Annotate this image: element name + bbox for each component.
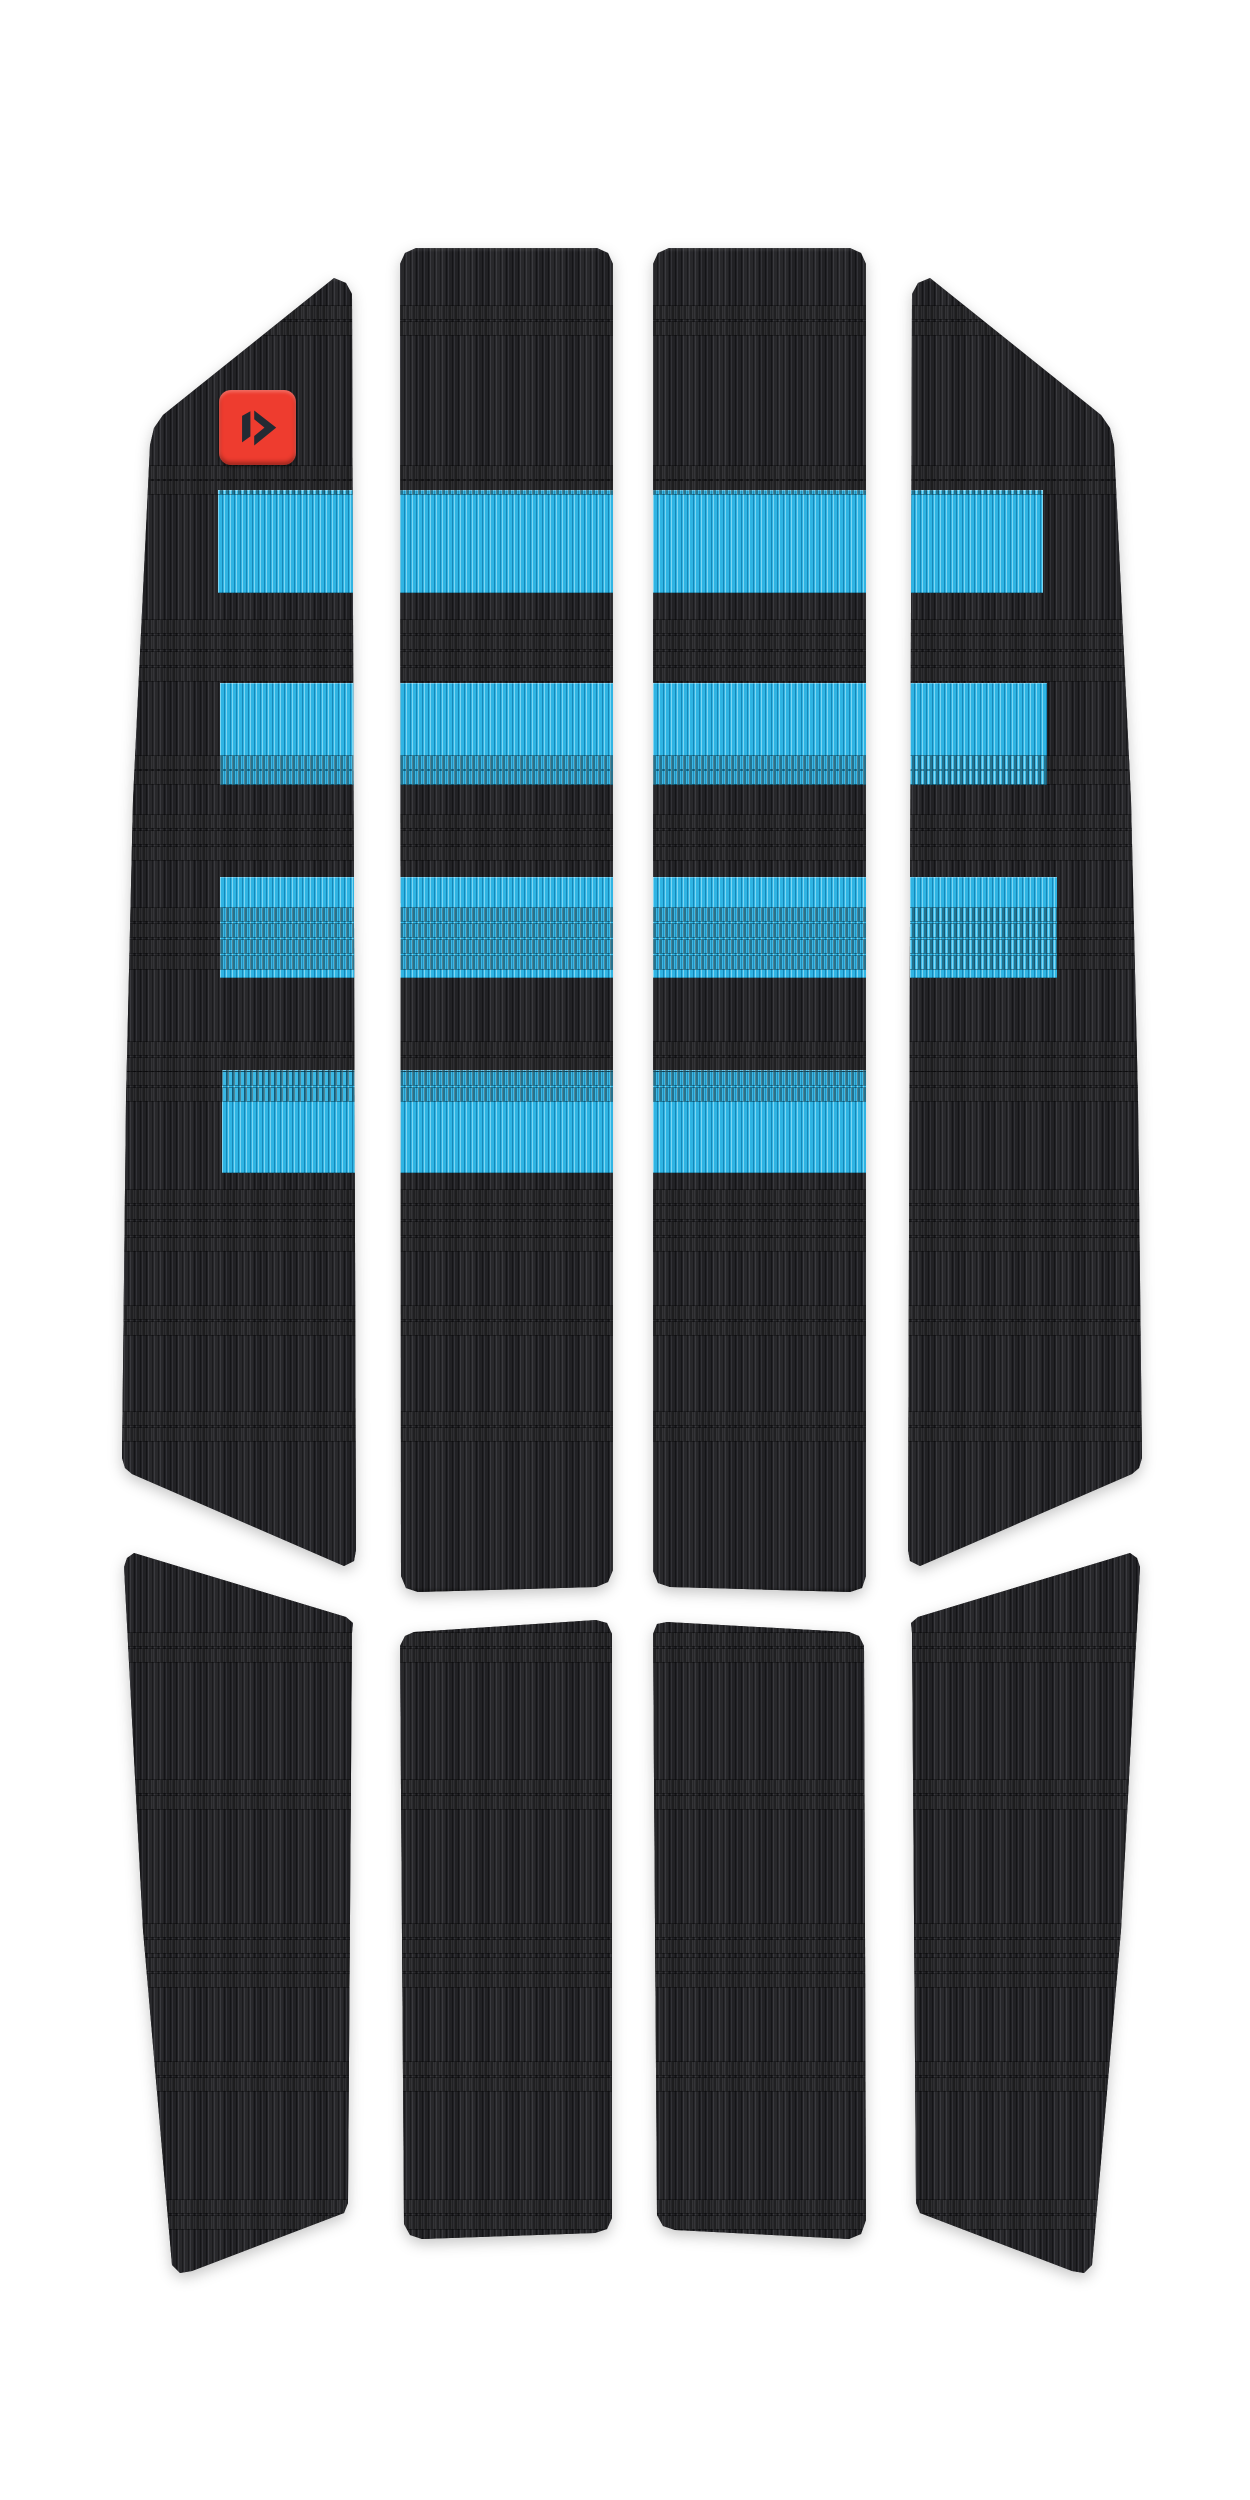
groove-seam: [653, 481, 866, 494]
groove-seam: [400, 1974, 613, 1987]
groove-seam: [400, 1322, 613, 1335]
groove-seam: [400, 831, 613, 844]
groove-seam: [906, 1412, 1146, 1425]
groove-seam: [400, 2216, 613, 2229]
groove-seam: [400, 466, 613, 479]
groove-seam: [653, 1958, 866, 1971]
pad-piece-upper-right-outer: [906, 278, 1146, 1570]
groove-seam: [653, 1072, 866, 1085]
groove-seam: [906, 756, 1146, 769]
blue-traction-stripe: [400, 490, 613, 593]
groove-seam: [118, 2200, 360, 2213]
groove-seam: [653, 636, 866, 649]
groove-seam: [653, 940, 866, 953]
groove-seam: [118, 847, 360, 860]
groove-seam: [118, 322, 360, 335]
groove-seam: [118, 940, 360, 953]
pad-piece-surface: [118, 1545, 360, 2285]
groove-seam: [653, 847, 866, 860]
groove-seam: [400, 1206, 613, 1219]
pad-piece-surface: [904, 1545, 1146, 2285]
groove-seam: [118, 1974, 360, 1987]
blue-traction-stripe: [653, 490, 866, 593]
groove-seam: [400, 652, 613, 665]
groove-seam: [400, 1796, 613, 1809]
groove-seam: [906, 1190, 1146, 1203]
groove-seam: [906, 847, 1146, 860]
groove-seam: [400, 2078, 613, 2091]
groove-seam: [653, 1238, 866, 1251]
groove-seam: [400, 1190, 613, 1203]
groove-seam: [653, 815, 866, 828]
blue-traction-stripe: [910, 490, 1043, 593]
pad-piece-lower-mid-right: [653, 1618, 866, 2242]
groove-seam: [118, 1088, 360, 1101]
groove-seam: [906, 940, 1146, 953]
groove-seam: [653, 1796, 866, 1809]
pad-piece-upper-mid-right: [653, 248, 866, 1592]
blue-traction-stripe: [220, 683, 356, 785]
groove-seam: [400, 636, 613, 649]
groove-seam: [906, 956, 1146, 969]
groove-seam: [400, 815, 613, 828]
groove-seam: [653, 1974, 866, 1987]
pad-piece-lower-mid-left: [400, 1618, 613, 2242]
groove-seam: [906, 620, 1146, 633]
groove-seam: [653, 1633, 866, 1646]
pad-piece-upper-left-outer: [118, 278, 360, 1570]
groove-seam: [653, 306, 866, 319]
groove-seam: [904, 1649, 1146, 1662]
groove-seam: [906, 1428, 1146, 1441]
pad-piece-surface: [653, 1618, 866, 2242]
groove-seam: [118, 1633, 360, 1646]
groove-seam: [118, 620, 360, 633]
groove-seam: [400, 908, 613, 921]
groove-seam: [118, 1322, 360, 1335]
groove-seam: [906, 668, 1146, 681]
groove-seam: [906, 652, 1146, 665]
groove-seam: [653, 668, 866, 681]
groove-seam: [904, 1796, 1146, 1809]
groove-seam: [118, 1428, 360, 1441]
pad-piece-surface: [400, 1618, 613, 2242]
groove-seam: [653, 831, 866, 844]
groove-seam: [400, 322, 613, 335]
groove-seam: [906, 908, 1146, 921]
groove-seam: [118, 2062, 360, 2075]
groove-seam: [118, 1206, 360, 1219]
groove-seam: [653, 908, 866, 921]
groove-seam: [904, 1974, 1146, 1987]
groove-seam: [906, 1306, 1146, 1319]
groove-seam: [118, 1222, 360, 1235]
groove-seam: [118, 956, 360, 969]
pad-piece-lower-right-outer: [904, 1545, 1146, 2285]
groove-seam: [904, 2200, 1146, 2213]
groove-seam: [118, 1649, 360, 1662]
groove-seam: [400, 620, 613, 633]
groove-seam: [118, 2078, 360, 2091]
groove-seam: [118, 1796, 360, 1809]
groove-seam: [400, 956, 613, 969]
blue-traction-stripe: [400, 683, 613, 785]
groove-seam: [904, 2216, 1146, 2229]
groove-seam: [653, 1206, 866, 1219]
groove-seam: [400, 1940, 613, 1953]
groove-seam: [118, 481, 360, 494]
groove-seam: [400, 1780, 613, 1793]
groove-seam: [906, 815, 1146, 828]
groove-seam: [653, 2216, 866, 2229]
groove-seam: [400, 1428, 613, 1441]
groove-seam: [400, 1306, 613, 1319]
groove-seam: [118, 815, 360, 828]
groove-seam: [906, 1238, 1146, 1251]
groove-seam: [118, 466, 360, 479]
groove-seam: [400, 1088, 613, 1101]
groove-seam: [904, 1958, 1146, 1971]
groove-seam: [400, 1958, 613, 1971]
groove-seam: [904, 1780, 1146, 1793]
groove-seam: [400, 1072, 613, 1085]
groove-seam: [400, 1222, 613, 1235]
groove-seam: [118, 924, 360, 937]
groove-seam: [653, 771, 866, 784]
groove-seam: [118, 908, 360, 921]
groove-seam: [118, 1042, 360, 1055]
groove-seam: [400, 847, 613, 860]
groove-seam: [400, 1238, 613, 1251]
groove-seam: [118, 1238, 360, 1251]
groove-seam: [906, 481, 1146, 494]
groove-seam: [653, 1924, 866, 1937]
groove-seam: [906, 771, 1146, 784]
groove-seam: [400, 1924, 613, 1937]
groove-seam: [653, 2200, 866, 2213]
blue-traction-stripe: [910, 683, 1047, 785]
groove-seam: [906, 924, 1146, 937]
groove-seam: [653, 756, 866, 769]
groove-seam: [118, 771, 360, 784]
groove-seam: [118, 1780, 360, 1793]
groove-seam: [400, 924, 613, 937]
groove-seam: [653, 924, 866, 937]
groove-seam: [400, 1649, 613, 1662]
blue-traction-stripe: [653, 1070, 866, 1173]
groove-seam: [118, 756, 360, 769]
groove-seam: [904, 1633, 1146, 1646]
blue-traction-stripe: [218, 490, 356, 593]
blue-traction-stripe: [653, 683, 866, 785]
groove-seam: [653, 1042, 866, 1055]
groove-seam: [400, 668, 613, 681]
groove-seam: [118, 1058, 360, 1071]
groove-seam: [906, 831, 1146, 844]
groove-seam: [906, 306, 1146, 319]
pad-piece-surface: [400, 248, 613, 1592]
groove-seam: [118, 1190, 360, 1203]
groove-seam: [653, 652, 866, 665]
groove-seam: [653, 466, 866, 479]
groove-seam: [118, 668, 360, 681]
groove-seam: [653, 1222, 866, 1235]
groove-seam: [653, 956, 866, 969]
groove-seam: [653, 1649, 866, 1662]
groove-seam: [400, 306, 613, 319]
groove-seam: [118, 1958, 360, 1971]
groove-seam: [118, 1072, 360, 1085]
groove-seam: [653, 620, 866, 633]
groove-seam: [906, 1042, 1146, 1055]
groove-seam: [653, 1088, 866, 1101]
duotone-arrow-icon: [235, 406, 281, 450]
groove-seam: [400, 1412, 613, 1425]
groove-seam: [400, 1633, 613, 1646]
groove-seam: [906, 466, 1146, 479]
groove-seam: [653, 1322, 866, 1335]
groove-seam: [118, 652, 360, 665]
groove-seam: [118, 636, 360, 649]
groove-seam: [653, 1412, 866, 1425]
groove-seam: [904, 2078, 1146, 2091]
pad-piece-lower-left-outer: [118, 1545, 360, 2285]
groove-seam: [653, 2062, 866, 2075]
pad-piece-surface: [906, 278, 1146, 1570]
groove-seam: [400, 771, 613, 784]
groove-seam: [906, 1058, 1146, 1071]
groove-seam: [118, 2216, 360, 2229]
groove-seam: [400, 2062, 613, 2075]
groove-seam: [400, 2200, 613, 2213]
groove-seam: [904, 1924, 1146, 1937]
groove-seam: [906, 1072, 1146, 1085]
groove-seam: [118, 831, 360, 844]
groove-seam: [653, 1306, 866, 1319]
groove-seam: [118, 1412, 360, 1425]
pad-piece-surface: [118, 278, 360, 1570]
groove-seam: [906, 1088, 1146, 1101]
groove-seam: [906, 636, 1146, 649]
groove-seam: [653, 2078, 866, 2091]
pad-piece-surface: [653, 248, 866, 1592]
groove-seam: [906, 322, 1146, 335]
groove-seam: [653, 1940, 866, 1953]
groove-seam: [118, 1924, 360, 1937]
blue-traction-stripe: [222, 1070, 356, 1173]
groove-seam: [653, 322, 866, 335]
groove-seam: [400, 1058, 613, 1071]
groove-seam: [653, 1190, 866, 1203]
blue-traction-stripe: [400, 1070, 613, 1173]
groove-seam: [400, 940, 613, 953]
groove-seam: [904, 1940, 1146, 1953]
pad-piece-upper-mid-left: [400, 248, 613, 1592]
groove-seam: [904, 2062, 1146, 2075]
groove-seam: [653, 1428, 866, 1441]
groove-seam: [906, 1322, 1146, 1335]
groove-seam: [118, 306, 360, 319]
groove-seam: [906, 1206, 1146, 1219]
groove-seam: [400, 756, 613, 769]
groove-seam: [400, 1042, 613, 1055]
groove-seam: [118, 1940, 360, 1953]
groove-seam: [653, 1058, 866, 1071]
traction-pad-product-image: [0, 0, 1250, 2500]
groove-seam: [118, 1306, 360, 1319]
groove-seam: [400, 481, 613, 494]
groove-seam: [653, 1780, 866, 1793]
groove-seam: [906, 1222, 1146, 1235]
duotone-logo-patch: [219, 390, 296, 465]
